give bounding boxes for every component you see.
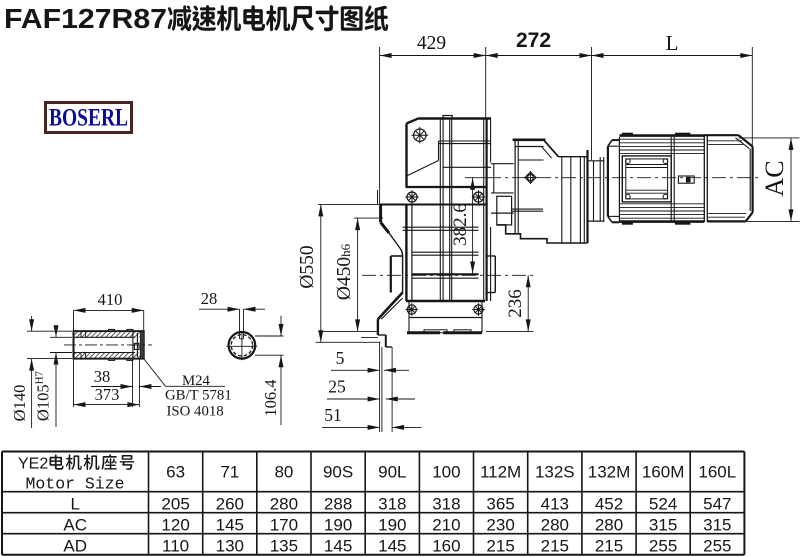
svg-text:ISO 4018: ISO 4018 <box>167 404 224 420</box>
svg-text:205: 205 <box>161 495 189 514</box>
svg-text:Ø105H7: Ø105H7 <box>34 370 53 421</box>
svg-text:365: 365 <box>486 495 514 514</box>
svg-text:145: 145 <box>378 537 406 556</box>
svg-text:210: 210 <box>432 516 460 535</box>
svg-text:280: 280 <box>270 495 298 514</box>
svg-text:315: 315 <box>649 516 677 535</box>
svg-text:452: 452 <box>595 495 623 514</box>
svg-text:280: 280 <box>541 516 569 535</box>
svg-text:135: 135 <box>270 537 298 556</box>
svg-text:Motor Size: Motor Size <box>25 475 124 494</box>
svg-text:524: 524 <box>649 495 677 514</box>
svg-text:318: 318 <box>432 495 460 514</box>
svg-text:160: 160 <box>432 537 460 556</box>
svg-text:L: L <box>666 31 679 55</box>
svg-text:272: 272 <box>516 29 551 52</box>
svg-text:GB/T 5781: GB/T 5781 <box>165 388 232 404</box>
svg-text:215: 215 <box>595 537 623 556</box>
svg-text:71: 71 <box>220 463 239 482</box>
svg-text:236: 236 <box>505 289 526 318</box>
svg-text:190: 190 <box>378 516 406 535</box>
svg-text:AC: AC <box>63 516 87 535</box>
svg-text:FAF127R87: FAF127R87 <box>4 3 167 34</box>
svg-text:382.6: 382.6 <box>450 203 471 246</box>
svg-text:373: 373 <box>95 385 120 404</box>
svg-text:90L: 90L <box>378 463 406 482</box>
svg-text:547: 547 <box>703 495 731 514</box>
svg-text:28: 28 <box>201 289 218 308</box>
svg-text:410: 410 <box>98 290 123 309</box>
svg-text:63: 63 <box>166 463 185 482</box>
svg-text:160M: 160M <box>642 463 685 482</box>
svg-text:110: 110 <box>162 537 189 556</box>
svg-text:AC: AC <box>760 160 789 196</box>
svg-text:120: 120 <box>161 516 189 535</box>
svg-text:145: 145 <box>324 537 352 556</box>
svg-text:145: 145 <box>216 516 244 535</box>
svg-text:Ø450h6: Ø450h6 <box>334 243 355 300</box>
svg-text:170: 170 <box>270 516 298 535</box>
svg-text:AD: AD <box>63 537 87 556</box>
svg-text:280: 280 <box>595 516 623 535</box>
svg-text:112M: 112M <box>480 463 521 482</box>
svg-text:260: 260 <box>216 495 244 514</box>
svg-text:215: 215 <box>541 537 569 556</box>
svg-text:Ø140: Ø140 <box>10 385 29 422</box>
svg-text:230: 230 <box>486 516 514 535</box>
svg-text:413: 413 <box>541 495 569 514</box>
svg-text:YE2: YE2 <box>18 456 48 473</box>
svg-text:288: 288 <box>324 495 352 514</box>
svg-text:315: 315 <box>703 516 731 535</box>
svg-text:90S: 90S <box>323 463 353 482</box>
svg-text:Ø550: Ø550 <box>297 245 318 288</box>
svg-text:132S: 132S <box>535 463 575 482</box>
svg-text:130: 130 <box>216 537 244 556</box>
svg-text:215: 215 <box>486 537 514 556</box>
svg-text:38: 38 <box>94 367 111 386</box>
svg-text:190: 190 <box>324 516 352 535</box>
svg-text:255: 255 <box>649 537 677 556</box>
svg-text:25: 25 <box>328 377 346 397</box>
svg-text:51: 51 <box>324 405 342 425</box>
svg-text:L: L <box>70 495 79 514</box>
svg-text:160L: 160L <box>698 463 736 482</box>
svg-text:BOSERL: BOSERL <box>49 105 128 132</box>
svg-text:106.4: 106.4 <box>261 379 280 416</box>
svg-text:100: 100 <box>432 463 460 482</box>
svg-text:429: 429 <box>417 33 446 54</box>
svg-text:255: 255 <box>703 537 731 556</box>
svg-text:132M: 132M <box>588 463 631 482</box>
svg-text:318: 318 <box>378 495 406 514</box>
svg-text:5: 5 <box>336 348 345 368</box>
svg-text:80: 80 <box>274 463 293 482</box>
